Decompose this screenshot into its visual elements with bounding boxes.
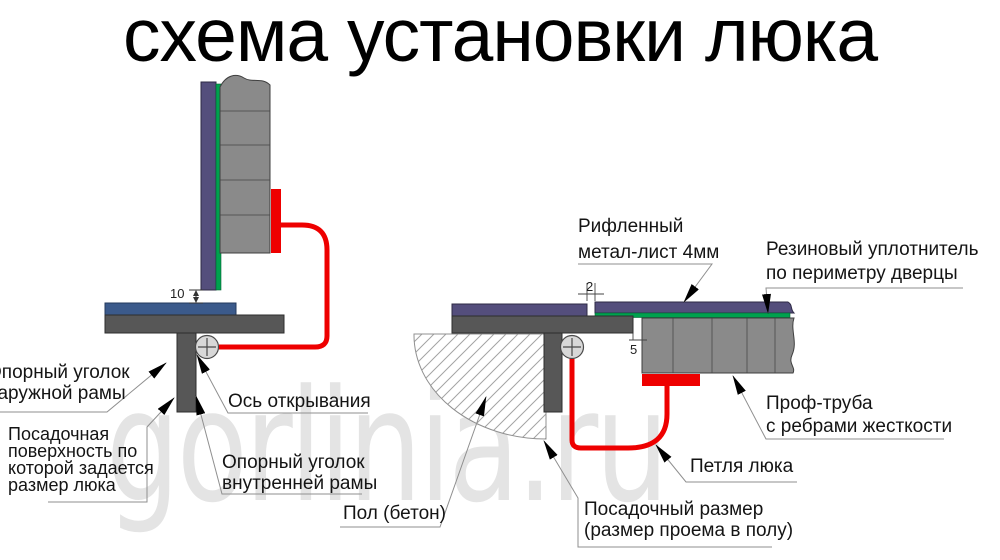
dimension-2: 2 [586, 279, 593, 294]
frame-bar-left [105, 315, 284, 333]
hinge-plate-left [271, 189, 281, 253]
left-view-open-hatch [105, 75, 327, 412]
pivot-axis-left [196, 336, 219, 359]
label-axis: Ось открывания [228, 391, 371, 412]
proftube-horizontal [642, 318, 794, 373]
label-seat-surface: Посадочная поверхность по которой задает… [8, 426, 154, 494]
frame-bar-right [452, 316, 633, 333]
pivot-axis-right [561, 336, 584, 359]
lid-sheet-horizontal [595, 302, 794, 313]
label-hinge: Петля люка [690, 456, 793, 477]
frame-leg-left [177, 333, 196, 412]
dimension-5: 5 [630, 342, 637, 357]
dimension-10: 10 [170, 286, 184, 301]
frame-flange-right [452, 304, 587, 316]
diagram-page: gorlinia.ru [0, 0, 1000, 560]
leader-sheet [578, 264, 712, 302]
page-title: схема установки люка [0, 0, 1000, 78]
label-outer-angle: Опорный уголок наружной рамы [0, 362, 130, 404]
proftube-vertical [220, 75, 270, 253]
label-rubber: Резиновый уплотнитель по периметру дверц… [766, 238, 978, 286]
leader-rubber [766, 288, 963, 313]
label-floor: Пол (бетон) [343, 503, 446, 524]
hinge-plate-right [642, 374, 700, 386]
frame-leg-right [544, 333, 562, 412]
support-angle-outer [105, 303, 236, 316]
label-seat-size: Посадочный размер (размер проема в полу) [584, 499, 793, 541]
label-inner-angle: Опорный уголок внутренней рамы [222, 452, 377, 494]
label-proftube: Проф-труба с ребрами жесткости [766, 392, 952, 438]
dimension-10-graphic [189, 290, 203, 303]
label-sheet: Рифленный метал-лист 4мм [578, 214, 719, 266]
lid-sheet-vertical [201, 82, 216, 290]
concrete-floor-section [414, 334, 546, 439]
